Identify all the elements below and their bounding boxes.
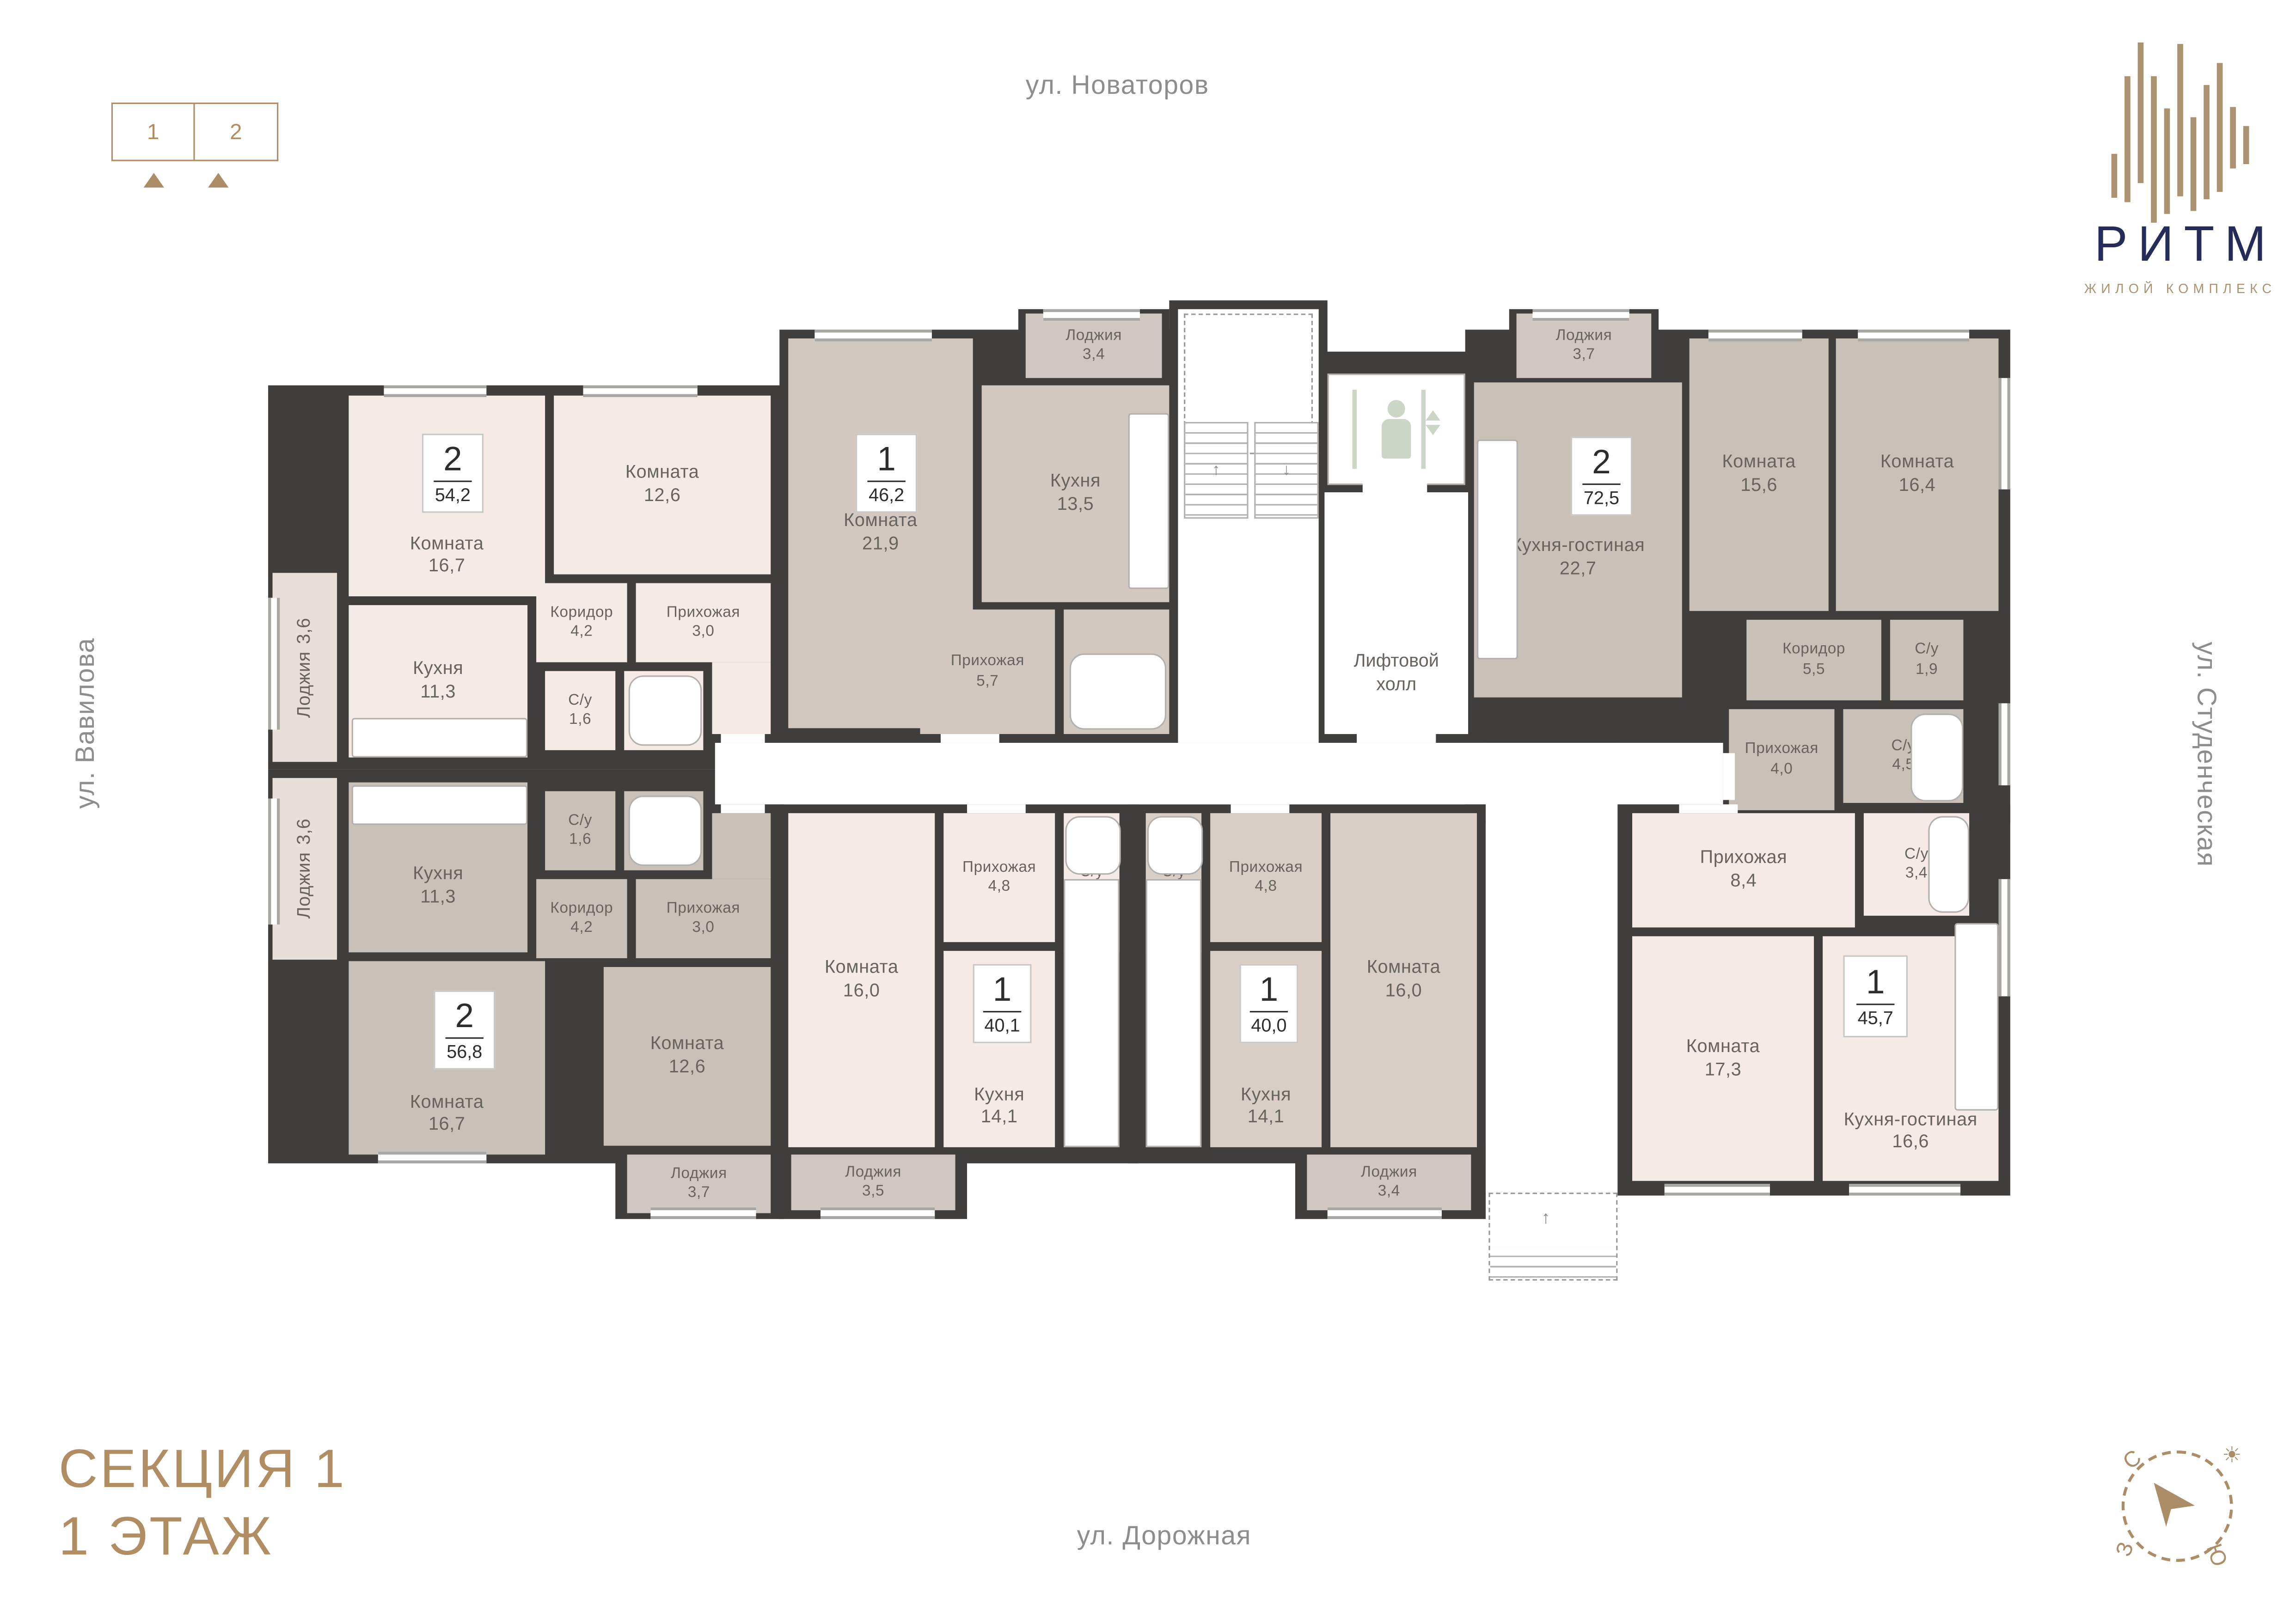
floor-page-1[interactable]: 1 [111, 103, 195, 161]
window-icon [1708, 330, 1802, 341]
section-title-line2: 1 ЭТАЖ [59, 1504, 347, 1572]
room-corridor[interactable]: Коридор4,2 [536, 879, 627, 958]
room-loggia[interactable]: Лоджия3,7 [627, 1155, 771, 1213]
apartment-badge-45-7[interactable]: 145,7 [1843, 955, 1907, 1038]
elevator-hall: Лифтовой холл [1324, 492, 1468, 734]
apartment-badge-72-5[interactable]: 272,5 [1571, 437, 1632, 516]
window-icon [650, 1207, 756, 1219]
room-loggia[interactable]: Лоджия3,6 [273, 778, 337, 960]
street-label-top: ул. Новаторов [1026, 70, 1209, 101]
street-label-right: ул. Студенческая [2191, 642, 2222, 867]
room-loggia[interactable]: Лоджия3,7 [1517, 313, 1652, 378]
room-living[interactable]: Комната16,0 [788, 813, 935, 1147]
room-living[interactable]: Комната17,3 [1632, 936, 1814, 1181]
bathtub-icon [1070, 654, 1166, 730]
elevator-rail-icon [1353, 390, 1357, 469]
window-icon [1998, 703, 2010, 785]
street-label-left: ул. Вавилова [70, 637, 101, 808]
logo: РИТМ ЖИЛОЙ КОМПЛЕКС [2069, 53, 2292, 296]
window-icon [268, 598, 280, 729]
section-title-line1: СЕКЦИЯ 1 [59, 1436, 347, 1504]
window-icon [820, 1207, 935, 1219]
window-icon [1858, 330, 1969, 341]
room-loggia[interactable]: Лоджия3,4 [1026, 313, 1162, 378]
room-hallway[interactable]: Прихожая4,0 [1729, 709, 1834, 810]
apartment-badge-40-1[interactable]: 140,1 [973, 964, 1032, 1043]
entrance-steps [1490, 1247, 1616, 1279]
door-opening [1679, 804, 1738, 813]
elevator-rail-icon [1421, 390, 1426, 469]
room-hallway[interactable]: Прихожая3,0 [636, 879, 771, 958]
room-hallway-passage[interactable] [712, 662, 771, 734]
room-living[interactable]: Комната12,6 [604, 967, 771, 1146]
room-living[interactable]: Комната12,6 [554, 396, 771, 575]
room-bathroom[interactable]: С/у1,6 [545, 791, 615, 870]
door-opening [1723, 753, 1735, 800]
window-icon [378, 1151, 487, 1163]
elevator-hall-label: Лифтовой [1354, 649, 1439, 673]
bathtub-icon [1065, 816, 1120, 875]
kitchen-counter-icon [1128, 413, 1169, 589]
bathtub-icon [629, 796, 702, 866]
elevator-door-opening [1363, 482, 1427, 494]
pagination-marker-icon [144, 173, 164, 188]
room-hallway[interactable]: Прихожая3,0 [636, 583, 771, 662]
window-icon [583, 386, 698, 397]
apartment-badge-40-0[interactable]: 140,0 [1240, 964, 1298, 1043]
window-icon [1328, 1207, 1442, 1219]
window-icon [384, 386, 486, 397]
kitchen-counter-icon [352, 785, 527, 825]
elevator-shaft [1328, 373, 1465, 485]
apartment-badge-46-2[interactable]: 146,2 [856, 434, 917, 513]
room-hallway-passage[interactable] [712, 813, 771, 879]
room-corridor[interactable]: Коридор5,5 [1746, 620, 1881, 700]
room-loggia[interactable]: Лоджия3,6 [273, 573, 337, 762]
window-icon [1533, 309, 1629, 321]
window-icon [814, 330, 932, 341]
pagination-marker-icon [208, 173, 228, 188]
entrance-arrow-icon: ↑ [1542, 1207, 1550, 1228]
door-opening [721, 734, 765, 743]
kitchen-counter-icon [1146, 879, 1201, 1147]
apartment-badge-56-8[interactable]: 256,8 [434, 991, 495, 1070]
bathtub-icon [1910, 714, 1963, 802]
entrance-porch-bottom [1488, 1193, 1617, 1280]
room-bathroom[interactable]: С/у1,9 [1890, 620, 1963, 700]
kitchen-counter-icon [1064, 879, 1119, 1147]
room-bathroom[interactable]: С/у1,6 [545, 671, 615, 750]
room-living[interactable]: Комната16,4 [1836, 338, 1999, 611]
floor-plan-page: 1 2 ул. Новаторов ул. Вавилова ул. Студе… [0, 0, 2296, 1622]
bathtub-icon [1147, 816, 1203, 875]
elevator-hall-label: холл [1376, 672, 1416, 696]
room-living[interactable]: Комната16,0 [1330, 813, 1477, 1147]
door-opening [721, 804, 765, 813]
room-corridor[interactable]: Коридор4,2 [536, 583, 627, 662]
elevator-person-icon [1382, 400, 1411, 459]
floor-pagination: 1 2 [111, 103, 280, 161]
kitchen-counter-icon [352, 718, 527, 758]
section-title: СЕКЦИЯ 1 1 ЭТАЖ [59, 1436, 347, 1571]
stairs-flight-up: ↑ [1184, 422, 1248, 519]
room-hallway[interactable]: Прихожая8,4 [1632, 813, 1855, 927]
bathtub-icon [629, 675, 702, 746]
floor-page-2[interactable]: 2 [195, 103, 279, 161]
logo-subtitle: ЖИЛОЙ КОМПЛЕКС [2069, 282, 2292, 296]
apartment-badge-54-2[interactable]: 254,2 [422, 434, 484, 513]
kitchen-counter-icon [1477, 440, 1518, 659]
bathtub-icon [1928, 816, 1969, 913]
elevator-updown-icon [1426, 410, 1440, 435]
door-opening [941, 734, 999, 743]
logo-title: РИТМ [2069, 217, 2292, 274]
door-opening [1357, 734, 1436, 743]
street-label-bottom: ул. Дорожная [1077, 1521, 1251, 1552]
window-icon [1849, 1184, 1960, 1195]
sun-icon: ☀ [2222, 1442, 2242, 1468]
stairs-flight-down: ↓ [1254, 422, 1318, 519]
room-loggia[interactable]: Лоджия3,4 [1307, 1155, 1471, 1210]
window-icon [1998, 378, 2010, 490]
door-opening [967, 804, 1026, 813]
window-icon [1998, 879, 2010, 997]
logo-soundwave-icon [2069, 53, 2292, 211]
door-opening [1231, 804, 1290, 813]
room-hallway[interactable]: Прихожая4,8 [943, 813, 1055, 942]
room-living[interactable]: Комната15,6 [1690, 338, 1829, 611]
room-loggia[interactable]: Лоджия3,5 [791, 1155, 955, 1210]
compass-icon: С З Ю ☀ [2110, 1439, 2245, 1574]
room-hallway[interactable]: Прихожая5,7 [920, 610, 1055, 734]
kitchen-counter-icon [1954, 923, 1998, 1111]
window-icon [1665, 1184, 1770, 1195]
window-icon [1043, 309, 1140, 321]
room-hallway[interactable]: Прихожая4,8 [1210, 813, 1322, 942]
corridor-entrance [1486, 743, 1617, 1193]
window-icon [268, 798, 280, 924]
